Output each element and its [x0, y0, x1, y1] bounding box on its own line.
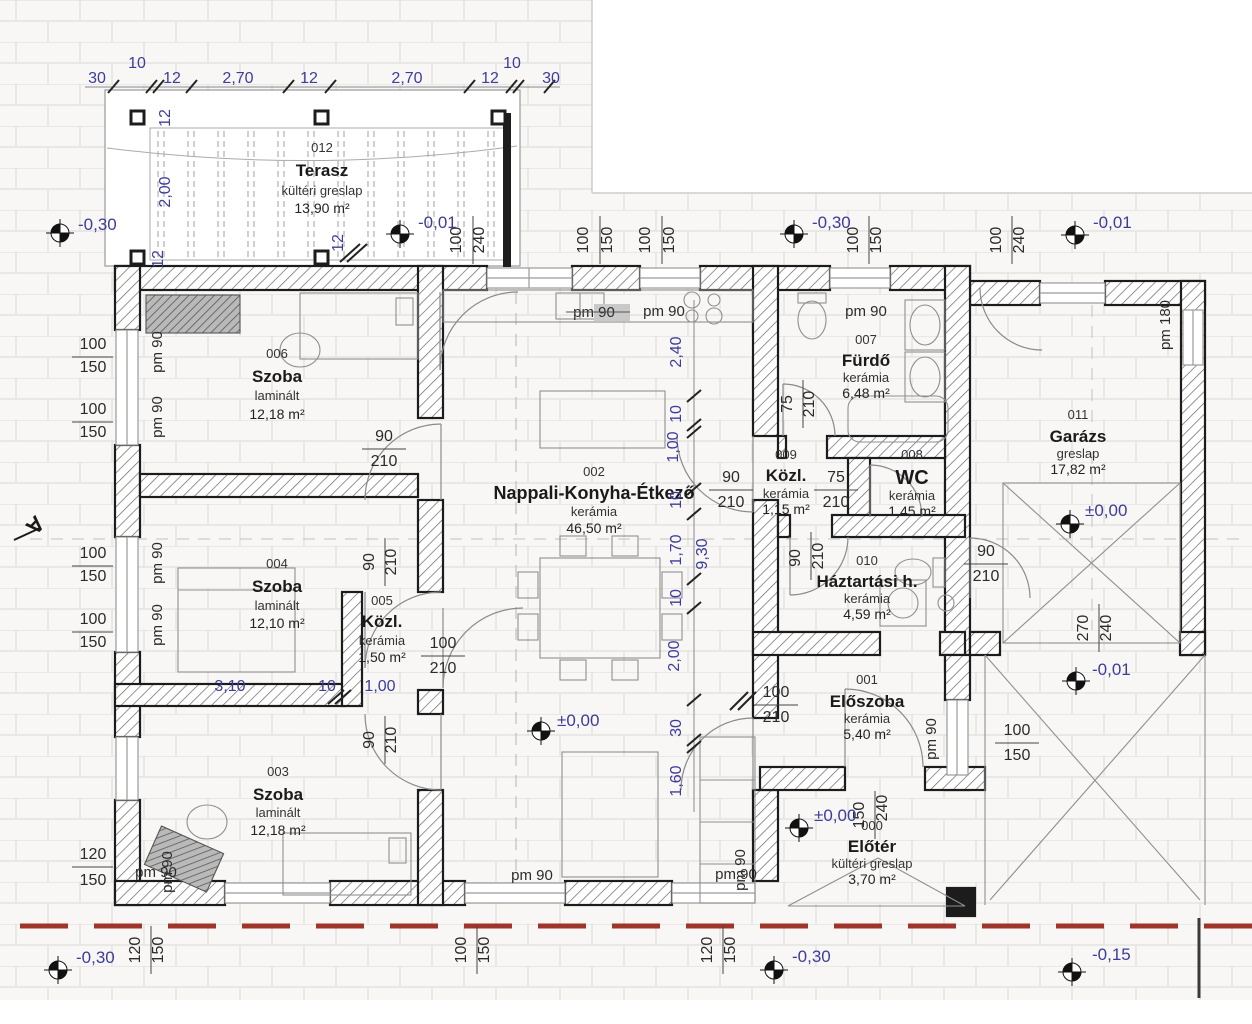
pm-label: pm 90: [149, 542, 166, 584]
door-size-label: 100: [763, 684, 790, 701]
dim-label: 150: [150, 937, 167, 964]
pm-label: pm 90: [159, 851, 176, 893]
dim-label: 30: [668, 719, 685, 737]
svg-text:12,10 m²: 12,10 m²: [249, 615, 305, 631]
svg-text:012: 012: [311, 140, 333, 155]
dim-label: 240: [1011, 227, 1028, 254]
dim-label: 150: [80, 568, 107, 585]
svg-text:Háztartási h.: Háztartási h.: [816, 572, 917, 591]
svg-text:1,15 m²: 1,15 m²: [762, 501, 810, 517]
svg-text:12,18 m²: 12,18 m²: [249, 406, 305, 422]
svg-text:kerámia: kerámia: [763, 486, 810, 501]
door-size-label: 210: [810, 543, 827, 570]
door-size-label: 210: [718, 494, 745, 511]
svg-text:006: 006: [266, 346, 288, 361]
garage-door-size-label: 240: [1098, 615, 1115, 642]
dim-label: 120: [80, 846, 107, 863]
garage-door-size-label: 270: [1075, 615, 1092, 642]
svg-text:kerámia: kerámia: [843, 370, 890, 385]
svg-text:5,40 m²: 5,40 m²: [843, 726, 891, 742]
door-size-label: 210: [801, 391, 818, 418]
door-size-label: 240: [874, 795, 891, 822]
door-size-label: 100: [430, 635, 457, 652]
dim-label: 12: [300, 70, 318, 87]
svg-text:1,45 m²: 1,45 m²: [888, 503, 936, 519]
svg-text:13,90 m²: 13,90 m²: [294, 200, 350, 216]
door-size-label: 210: [763, 709, 790, 726]
door-size-label: 90: [722, 469, 740, 486]
svg-text:3,70 m²: 3,70 m²: [848, 871, 896, 887]
dim-label: 240: [471, 227, 488, 254]
dim-label: 150: [868, 227, 885, 254]
svg-text:kerámia: kerámia: [889, 488, 936, 503]
dim-label: 100: [637, 227, 654, 254]
window: [116, 330, 138, 445]
elevation-label: -0,30: [792, 947, 831, 966]
dim-label: 150: [476, 937, 493, 964]
terrace-door: [487, 268, 572, 288]
pm-label: pm 90: [845, 303, 887, 320]
dim-label: 2,00: [157, 176, 174, 207]
elevation-label: ±0,00: [557, 711, 599, 730]
dim-label: 150: [80, 424, 107, 441]
svg-text:Előszoba: Előszoba: [830, 692, 905, 711]
svg-text:011: 011: [1068, 407, 1089, 422]
pm-label: pm 90: [923, 718, 940, 760]
dim-label: 100: [80, 336, 107, 353]
dim-label: 150: [1004, 747, 1031, 764]
dim-label: 1,00: [665, 431, 682, 462]
dim-label: 1,70: [668, 534, 685, 565]
dim-label: 1,00: [364, 678, 395, 695]
door-size-label: 90: [977, 543, 995, 560]
svg-text:kültéri greslap: kültéri greslap: [832, 856, 913, 871]
svg-text:004: 004: [266, 556, 288, 571]
pm-label: pm 90: [149, 604, 166, 646]
door-size-label: 75: [779, 395, 796, 413]
pm-label: pm 90: [149, 331, 166, 373]
dim-label: 3,10: [214, 678, 245, 695]
window: [1040, 283, 1105, 303]
dim-label: 150: [80, 872, 107, 889]
porch-post: [947, 888, 975, 916]
dim-label: 2,70: [391, 70, 422, 87]
elevation-label: -0,01: [418, 213, 457, 232]
dim-label: 150: [722, 937, 739, 964]
dim-label: 12: [157, 109, 174, 127]
elevation-label: -0,30: [78, 215, 117, 234]
svg-text:kerámia: kerámia: [844, 711, 891, 726]
dim-label: 1,60: [668, 765, 685, 796]
door-size-label: 90: [787, 549, 804, 567]
dim-label: 10: [668, 405, 685, 423]
dim-label: 100: [988, 227, 1005, 254]
svg-text:Terasz: Terasz: [296, 161, 349, 180]
dim-label: 100: [80, 545, 107, 562]
svg-text:Garázs: Garázs: [1050, 427, 1107, 446]
door-size-label: 75: [827, 469, 845, 486]
dim-label: 12: [330, 234, 347, 252]
pm-label: pm 90: [149, 396, 166, 438]
door-size-label: 210: [823, 494, 850, 511]
elevation-label: ±0,00: [814, 806, 856, 825]
svg-text:laminált: laminált: [255, 388, 300, 403]
dim-label: 100: [453, 937, 470, 964]
door-size-label: 210: [371, 453, 398, 470]
window: [225, 883, 330, 903]
dim-label: 100: [1004, 722, 1031, 739]
floor-plan-drawing: 012Teraszkültéri greslap13,90 m² 006Szob…: [0, 0, 1252, 1024]
dim-label: 10: [668, 589, 685, 607]
elevation-label: -0,15: [1092, 945, 1131, 964]
elevation-label: -0,01: [1093, 213, 1132, 232]
svg-text:005: 005: [371, 593, 393, 608]
pm-label: pm 180: [1157, 300, 1174, 350]
elevation-label: -0,01: [1092, 660, 1131, 679]
svg-text:009: 009: [775, 447, 797, 462]
svg-text:kerámia: kerámia: [359, 633, 406, 648]
svg-text:Szoba: Szoba: [252, 367, 303, 386]
pm-label: pm 90: [732, 849, 749, 891]
dim-label: 100: [80, 401, 107, 418]
dim-label: 120: [699, 937, 716, 964]
svg-text:Szoba: Szoba: [253, 785, 304, 804]
dim-label: 30: [88, 70, 106, 87]
svg-text:Fürdő: Fürdő: [842, 351, 890, 370]
dim-label: 10: [128, 55, 146, 72]
elevation-label: -0,30: [76, 948, 115, 967]
window: [640, 268, 700, 288]
window: [465, 883, 565, 903]
svg-text:Előtér: Előtér: [848, 837, 897, 856]
window: [947, 700, 968, 775]
dim-label: 10: [503, 55, 521, 72]
svg-text:laminált: laminált: [256, 805, 301, 820]
svg-text:Szoba: Szoba: [252, 577, 303, 596]
svg-text:laminált: laminált: [255, 598, 300, 613]
svg-text:46,50 m²: 46,50 m²: [566, 520, 622, 536]
door-size-label: 210: [430, 660, 457, 677]
pm-label: pm 90: [643, 303, 685, 320]
elevation-label: -0,30: [812, 213, 851, 232]
svg-text:12,18 m²: 12,18 m²: [250, 822, 306, 838]
dim-label: 10: [318, 678, 336, 695]
dim-label: 150: [80, 634, 107, 651]
dim-label: 30: [542, 70, 560, 87]
svg-text:Nappali-Konyha-Étkező: Nappali-Konyha-Étkező: [493, 482, 694, 503]
svg-text:001: 001: [856, 672, 878, 687]
svg-text:010: 010: [856, 553, 878, 568]
door-size-label: 90: [361, 731, 378, 749]
svg-text:17,82 m²: 17,82 m²: [1050, 461, 1106, 477]
neighbor-plot-area: [592, 0, 1252, 193]
svg-text:Közl.: Közl.: [362, 612, 403, 631]
terrace-edge-beam: [503, 113, 511, 267]
dim-label: 120: [127, 937, 144, 964]
svg-text:kerámia: kerámia: [571, 504, 618, 519]
pm-label: pm 90: [511, 867, 553, 884]
svg-text:007: 007: [855, 332, 877, 347]
svg-text:008: 008: [901, 447, 923, 462]
door-size-label: 210: [973, 568, 1000, 585]
window: [116, 737, 138, 800]
svg-text:Közl.: Közl.: [766, 466, 807, 485]
svg-text:6,48 m²: 6,48 m²: [842, 385, 890, 401]
dim-label: 2,00: [666, 640, 683, 671]
window: [1183, 310, 1203, 365]
door-size-label: 210: [383, 727, 400, 754]
desk: [146, 295, 240, 333]
svg-text:4,59 m²: 4,59 m²: [843, 606, 891, 622]
svg-text:kerámia: kerámia: [844, 591, 891, 606]
dim-label: 100: [575, 227, 592, 254]
dim-label: 10: [668, 491, 685, 509]
dim-label: 2,70: [222, 70, 253, 87]
dim-label: 12: [150, 250, 167, 268]
dim-label: 2,40: [668, 336, 685, 367]
svg-text:1,50 m²: 1,50 m²: [358, 649, 406, 665]
door-size-label: 90: [361, 553, 378, 571]
svg-text:WC: WC: [895, 467, 928, 489]
svg-text:kültéri greslap: kültéri greslap: [282, 183, 363, 198]
dim-label: 150: [599, 227, 616, 254]
elevation-label: ±0,00: [1085, 501, 1127, 520]
svg-text:greslap: greslap: [1057, 446, 1100, 461]
dim-label: 150: [661, 227, 678, 254]
dim-label: 12: [481, 70, 499, 87]
window: [116, 537, 138, 652]
dim-label: 150: [80, 359, 107, 376]
dim-label: 100: [80, 611, 107, 628]
svg-text:003: 003: [267, 764, 289, 779]
svg-text:002: 002: [583, 464, 605, 479]
door-size-label: 210: [383, 549, 400, 576]
window: [830, 268, 890, 288]
dim-label: 12: [163, 70, 181, 87]
dim-label: 9,30: [694, 538, 711, 569]
door-size-label: 90: [375, 428, 393, 445]
